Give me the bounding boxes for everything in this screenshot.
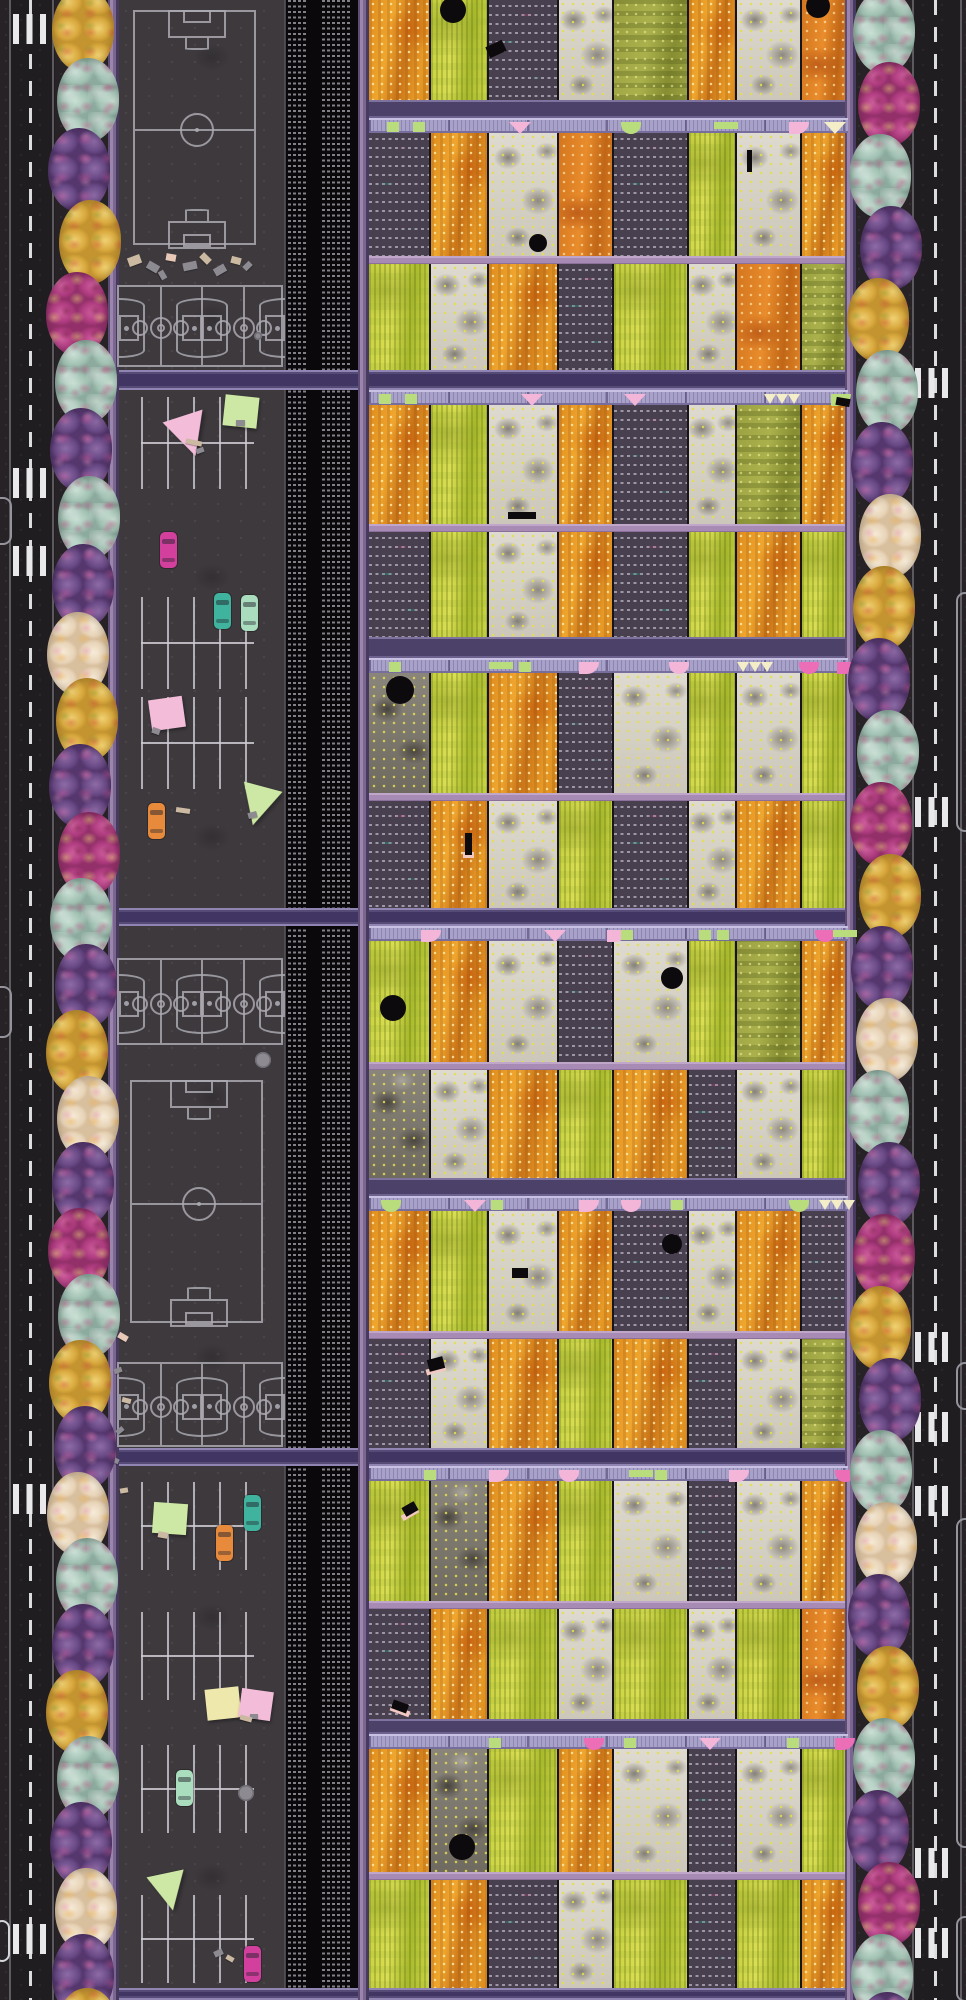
- street-tree: [59, 200, 121, 284]
- roof-vent-bar: [747, 150, 752, 172]
- bb-hoop: [192, 326, 197, 331]
- building-block-dw: [802, 1211, 848, 1331]
- car-windshield: [216, 600, 229, 605]
- building-block-dw: [614, 1211, 687, 1331]
- shopfront-awning-triangle: [464, 1200, 486, 1212]
- shopfront-strip: [369, 926, 848, 941]
- street-horizontal-alley: [369, 1331, 848, 1339]
- street-tree: [848, 638, 910, 722]
- street-tree: [859, 1358, 921, 1442]
- road-right: [912, 0, 962, 2000]
- roof-vent-circle: [662, 1234, 682, 1254]
- bb-hoop: [207, 1404, 212, 1409]
- ground-dot: [254, 332, 262, 340]
- railway-tie-column: [332, 0, 335, 2000]
- street-tree: [849, 134, 911, 218]
- car-rear-window: [218, 1551, 231, 1555]
- building-block-or: [431, 801, 487, 908]
- building-block-gw: [489, 405, 557, 524]
- shopfront-awning-arc: [789, 1200, 809, 1212]
- building-block-or: [431, 1609, 487, 1719]
- bb-hoop: [275, 326, 280, 331]
- driveway-apron-left: [0, 1920, 10, 1962]
- building-block-yg: [802, 1749, 848, 1872]
- car-windshield: [243, 602, 256, 607]
- building-block-yg: [802, 532, 848, 637]
- roof-vent-bar: [512, 1268, 528, 1278]
- building-block-gw: [489, 133, 557, 256]
- crosswalk-right: [915, 1412, 951, 1442]
- building-block-dw: [559, 264, 612, 370]
- market-awning-square: [152, 1502, 188, 1536]
- driveway-right: [956, 1916, 966, 2000]
- bb-hoop: [192, 1404, 197, 1409]
- bb-hoop: [207, 326, 212, 331]
- street-horizontal-main: [108, 908, 856, 926]
- soccer-goal-box: [185, 1080, 213, 1093]
- ground-dot: [255, 1052, 271, 1068]
- shopfront-bunting-triangle: [831, 1200, 843, 1210]
- building-block-or: [614, 1070, 687, 1178]
- building-row: [369, 1609, 848, 1719]
- driveway-right: [956, 1362, 966, 1410]
- shopfront-sign-square: [405, 394, 417, 404]
- building-block-dw: [559, 673, 612, 793]
- shopfront-bunting-triangle: [749, 662, 761, 672]
- street-tree: [858, 1142, 920, 1226]
- crosswalk-right: [915, 1332, 951, 1362]
- building-block-dw: [369, 801, 429, 908]
- building-block-yg: [689, 673, 735, 793]
- railway-tie-column: [288, 0, 291, 2000]
- building-block-gw: [559, 1880, 612, 1988]
- car-rear-window: [243, 621, 256, 625]
- building-block-od: [802, 1609, 848, 1719]
- soccer-penalty-arc: [185, 38, 209, 50]
- parked-car: [244, 1495, 261, 1531]
- street-tree: [847, 278, 909, 362]
- building-block-yg: [802, 673, 848, 793]
- building-block-gw: [737, 1339, 800, 1448]
- soccer-center-spot: [195, 128, 199, 132]
- crosswalk-left: [13, 468, 49, 498]
- street-horizontal-alley: [369, 1601, 848, 1609]
- bb-hoop: [124, 326, 129, 331]
- building-block-gw: [489, 801, 557, 908]
- building-block-gw: [559, 0, 612, 100]
- building-block-dw: [614, 532, 687, 637]
- building-block-dw: [369, 532, 429, 637]
- crosswalk-left: [13, 1924, 49, 1954]
- driveway-left: [0, 986, 12, 1038]
- shopfront-awning-triangle: [509, 122, 531, 134]
- street-horizontal-alley: [369, 524, 848, 532]
- car-windshield: [246, 1953, 259, 1958]
- building-block-dw: [689, 1339, 735, 1448]
- car-windshield: [150, 810, 163, 815]
- street-tree: [859, 494, 921, 578]
- shopfront-awning-triangle: [824, 122, 846, 134]
- building-row: [369, 673, 848, 793]
- street-horizontal-alley: [369, 256, 848, 264]
- shopfront-awning-arc: [489, 1470, 509, 1482]
- shopfront-awning-arc: [669, 662, 689, 674]
- building-block-yg: [431, 673, 487, 793]
- building-block-gw: [614, 1749, 687, 1872]
- ground-debris: [165, 253, 176, 262]
- car-rear-window: [178, 1796, 191, 1800]
- railway-tie-column: [347, 0, 350, 2000]
- street-vertical-mauve: [358, 0, 369, 2000]
- parked-car: [176, 1770, 193, 1806]
- street-horizontal-main: [108, 1988, 856, 2000]
- building-block-gw: [431, 1070, 487, 1178]
- shopfront-sign-square: [787, 1738, 799, 1748]
- building-block-gw: [689, 405, 735, 524]
- ground-debris: [236, 420, 245, 426]
- bb-center-circle-inner: [157, 1000, 165, 1008]
- building-block-or: [802, 941, 848, 1062]
- building-block-gw: [737, 1481, 800, 1601]
- building-block-dw: [559, 941, 612, 1062]
- shopfront-awning-arc: [559, 1470, 579, 1482]
- shopfront-strip: [369, 118, 848, 133]
- building-block-ol: [802, 264, 848, 370]
- building-block-or: [369, 1211, 429, 1331]
- shopfront-sign-square: [671, 1200, 683, 1210]
- street-tree: [858, 62, 920, 146]
- shopfront-awning-arc: [729, 1470, 749, 1482]
- shopfront-sign-square: [491, 1200, 503, 1210]
- shopfront-strip: [369, 390, 848, 405]
- street-tree: [847, 1790, 909, 1874]
- building-block-or: [559, 1749, 612, 1872]
- shopfront-sign-square: [624, 1738, 636, 1748]
- bb-hoop: [192, 1001, 197, 1006]
- railway-tie-column: [337, 0, 340, 2000]
- building-block-dw: [689, 1880, 735, 1988]
- crosswalk-left: [13, 546, 49, 576]
- building-block-od: [737, 264, 800, 370]
- market-awning-triangle: [146, 1869, 191, 1914]
- building-block-or: [431, 133, 487, 256]
- building-block-or: [489, 1339, 557, 1448]
- building-block-yg: [559, 1339, 612, 1448]
- shopfront-awning-triangle: [521, 394, 543, 406]
- building-block-yg: [802, 1070, 848, 1178]
- railway-tie-column: [303, 0, 306, 2000]
- shopfront-strip: [369, 1196, 848, 1211]
- building-block-or: [802, 1880, 848, 1988]
- shopfront-sign-square: [424, 1470, 436, 1480]
- street-horizontal-block: [358, 100, 856, 118]
- street-tree: [847, 1070, 909, 1154]
- building-block-yg: [737, 1880, 800, 1988]
- shopfront-awning-arc: [815, 930, 835, 942]
- bb-free-throw-circle: [173, 320, 189, 336]
- crosswalk-right: [915, 1848, 951, 1878]
- building-block-yg: [614, 264, 687, 370]
- shopfront-sign-square: [519, 662, 531, 672]
- street-tree: [856, 350, 918, 434]
- shopfront-awning-arc: [584, 1738, 604, 1750]
- building-row: [369, 1070, 848, 1178]
- shopfront-awning-arc: [381, 1200, 401, 1212]
- crosswalk-right: [915, 1486, 951, 1516]
- shopfront-bunting-triangle: [819, 1200, 831, 1210]
- building-block-gw: [431, 264, 487, 370]
- shopfront-sign-square: [379, 394, 391, 404]
- building-row: [369, 133, 848, 256]
- ground-dot: [238, 1785, 254, 1801]
- building-block-dw: [689, 1070, 735, 1178]
- building-block-or: [489, 1481, 557, 1601]
- building-block-yg: [559, 801, 612, 908]
- building-block-yg: [489, 1749, 557, 1872]
- bb-center-circle-inner: [240, 1000, 248, 1008]
- car-rear-window: [246, 1972, 259, 1976]
- building-block-gw: [614, 1481, 687, 1601]
- shopfront-awning-arc: [621, 122, 641, 134]
- soccer-penalty-arc: [187, 1108, 211, 1120]
- building-block-yg: [431, 532, 487, 637]
- shopfront-awning-arc: [579, 662, 599, 674]
- building-block-yg: [369, 264, 429, 370]
- building-block-gw: [689, 1609, 735, 1719]
- building-block-gw: [689, 1211, 735, 1331]
- street-horizontal-block: [358, 1719, 856, 1734]
- roof-vent-circle: [380, 995, 406, 1021]
- street-tree: [851, 422, 913, 506]
- crosswalk-right: [915, 797, 951, 827]
- building-row: [369, 1749, 848, 1872]
- basketball-court-pair: [117, 958, 283, 1045]
- shopfront-awning-arc: [579, 1200, 599, 1212]
- roof-vent-bar: [508, 512, 536, 519]
- building-block-or: [559, 1211, 612, 1331]
- building-block-gd: [369, 1070, 429, 1178]
- shopfront-sign-square: [413, 122, 425, 132]
- bb-center-circle-inner: [157, 324, 165, 332]
- parked-car: [214, 593, 231, 629]
- street-tree: [853, 566, 915, 650]
- building-block-or: [802, 133, 848, 256]
- building-block-gw: [737, 673, 800, 793]
- building-row: [369, 941, 848, 1062]
- basketball-court-pair: [117, 285, 283, 367]
- street-horizontal-alley: [369, 793, 848, 801]
- building-block-yg: [431, 405, 487, 524]
- building-block-or: [802, 405, 848, 524]
- shopfront-strip: [369, 658, 848, 673]
- street-horizontal-main: [108, 370, 856, 390]
- building-block-yg: [489, 1609, 557, 1719]
- soccer-goal-box: [183, 234, 211, 247]
- bb-free-throw-circle: [256, 996, 272, 1012]
- market-awning-square: [204, 1686, 241, 1721]
- building-block-or: [489, 673, 557, 793]
- bb-free-throw-circle: [215, 320, 231, 336]
- crosswalk-left: [13, 1484, 49, 1514]
- building-row: [369, 264, 848, 370]
- building-row: [369, 405, 848, 524]
- building-block-yg: [614, 1609, 687, 1719]
- building-row: [369, 801, 848, 908]
- street-tree: [857, 710, 919, 794]
- building-block-yg: [369, 1481, 429, 1601]
- shopfront-bunting-triangle: [764, 394, 776, 404]
- street-tree: [853, 1718, 915, 1802]
- roof-vent-circle: [529, 234, 547, 252]
- car-windshield: [178, 1777, 191, 1782]
- shopfront-awning-triangle: [699, 1738, 721, 1750]
- shopfront-awning-triangle: [544, 930, 566, 942]
- crosswalk-right: [915, 368, 951, 398]
- building-block-ol: [737, 405, 800, 524]
- roof-vent-circle: [449, 1834, 475, 1860]
- street-horizontal-block: [358, 637, 856, 658]
- street-horizontal-alley: [369, 1062, 848, 1070]
- driveway-right: [956, 592, 966, 832]
- building-block-dw: [369, 1339, 429, 1448]
- street-tree: [850, 782, 912, 866]
- soccer-goal-box: [185, 1312, 213, 1325]
- building-block-yg: [737, 1609, 800, 1719]
- building-block-dw: [614, 133, 687, 256]
- building-block-yg: [689, 941, 735, 1062]
- building-block-or: [369, 405, 429, 524]
- roof-vent-circle: [661, 967, 683, 989]
- street-horizontal-main: [108, 1448, 856, 1466]
- shopfront-sign-bar: [489, 662, 513, 669]
- car-windshield: [218, 1532, 231, 1537]
- street-horizontal-alley: [369, 1872, 848, 1880]
- bb-free-throw-circle: [173, 996, 189, 1012]
- shopfront-strip: [369, 1466, 848, 1481]
- building-block-or: [559, 405, 612, 524]
- building-block-yg: [689, 532, 735, 637]
- railway-tie-column: [322, 0, 325, 2000]
- bb-center-circle-inner: [157, 1403, 165, 1411]
- basketball-court-pair: [117, 1362, 283, 1447]
- soccer-field: [133, 10, 256, 245]
- railway-tie-column: [327, 0, 330, 2000]
- building-block-dw: [689, 1749, 735, 1872]
- shopfront-sign-bar: [714, 122, 738, 129]
- building-block-or: [489, 264, 557, 370]
- bb-free-throw-circle: [132, 320, 148, 336]
- roof-vent-circle: [386, 676, 414, 704]
- bb-free-throw-circle: [132, 996, 148, 1012]
- building-block-yg: [802, 801, 848, 908]
- building-block-od: [559, 133, 612, 256]
- building-block-or: [431, 941, 487, 1062]
- crosswalk-left: [13, 14, 49, 44]
- parked-car: [160, 532, 177, 568]
- soccer-penalty-arc: [187, 1287, 211, 1299]
- shopfront-strip: [369, 1734, 848, 1749]
- building-block-dw: [689, 1481, 735, 1601]
- parked-car: [148, 803, 165, 839]
- building-block-gw: [489, 532, 557, 637]
- shopfront-sign-square: [717, 930, 729, 940]
- building-block-gw: [689, 801, 735, 908]
- building-block-gw: [614, 941, 687, 1062]
- building-block-or: [737, 801, 800, 908]
- railway-tie-column: [342, 0, 345, 2000]
- building-row: [369, 1211, 848, 1331]
- street-horizontal-block: [358, 1178, 856, 1196]
- building-row: [369, 1880, 848, 1988]
- parked-car: [244, 1946, 261, 1982]
- railway-tie-column: [293, 0, 296, 2000]
- soccer-penalty-arc: [185, 209, 209, 221]
- car-rear-window: [162, 558, 175, 562]
- street-tree: [858, 1862, 920, 1946]
- building-block-yg: [431, 1211, 487, 1331]
- bb-free-throw-circle: [173, 1399, 189, 1415]
- roof-vent-bar: [465, 833, 472, 855]
- building-block-yg: [689, 133, 735, 256]
- parking-bank: [141, 597, 254, 689]
- street-tree: [860, 206, 922, 290]
- building-block-ol: [737, 941, 800, 1062]
- bb-hoop: [275, 1001, 280, 1006]
- car-rear-window: [216, 619, 229, 623]
- shopfront-sign-square: [387, 122, 399, 132]
- shopfront-awning-arc: [789, 122, 809, 134]
- driveway-left: [0, 497, 12, 545]
- shopfront-sign-square: [489, 1738, 501, 1748]
- parked-car: [216, 1525, 233, 1561]
- shopfront-sign-bar: [833, 930, 857, 937]
- building-row: [369, 1481, 848, 1601]
- shopfront-bunting-triangle: [776, 394, 788, 404]
- soccer-center-spot: [197, 1202, 201, 1206]
- building-block-yg: [559, 1070, 612, 1178]
- bb-free-throw-circle: [132, 1399, 148, 1415]
- street-tree: [856, 998, 918, 1082]
- shopfront-sign-square: [389, 662, 401, 672]
- bb-center-circle-inner: [240, 1403, 248, 1411]
- car-windshield: [162, 539, 175, 544]
- building-block-ol: [802, 1339, 848, 1448]
- building-block-gw: [431, 1339, 487, 1448]
- building-block-or: [802, 1481, 848, 1601]
- shopfront-sign-square: [699, 930, 711, 940]
- bb-free-throw-circle: [215, 996, 231, 1012]
- soccer-field: [130, 1080, 263, 1323]
- building-block-gw: [689, 264, 735, 370]
- crosswalk-right: [915, 1928, 951, 1958]
- building-block-or: [489, 1070, 557, 1178]
- building-block-dw: [489, 1880, 557, 1988]
- building-block-gw: [737, 1070, 800, 1178]
- building-block-gw: [737, 0, 800, 100]
- building-block-or: [369, 1749, 429, 1872]
- shopfront-awning-arc: [621, 1200, 641, 1212]
- building-block-dw: [614, 405, 687, 524]
- building-block-gw: [737, 1749, 800, 1872]
- shopfront-bunting-triangle: [843, 1200, 855, 1210]
- bb-hoop: [124, 1001, 129, 1006]
- building-block-or: [737, 1211, 800, 1331]
- shopfront-awning-arc: [421, 930, 441, 942]
- bb-hoop: [275, 1404, 280, 1409]
- building-block-dw: [369, 133, 429, 256]
- bb-hoop: [207, 1001, 212, 1006]
- street-tree: [855, 1502, 917, 1586]
